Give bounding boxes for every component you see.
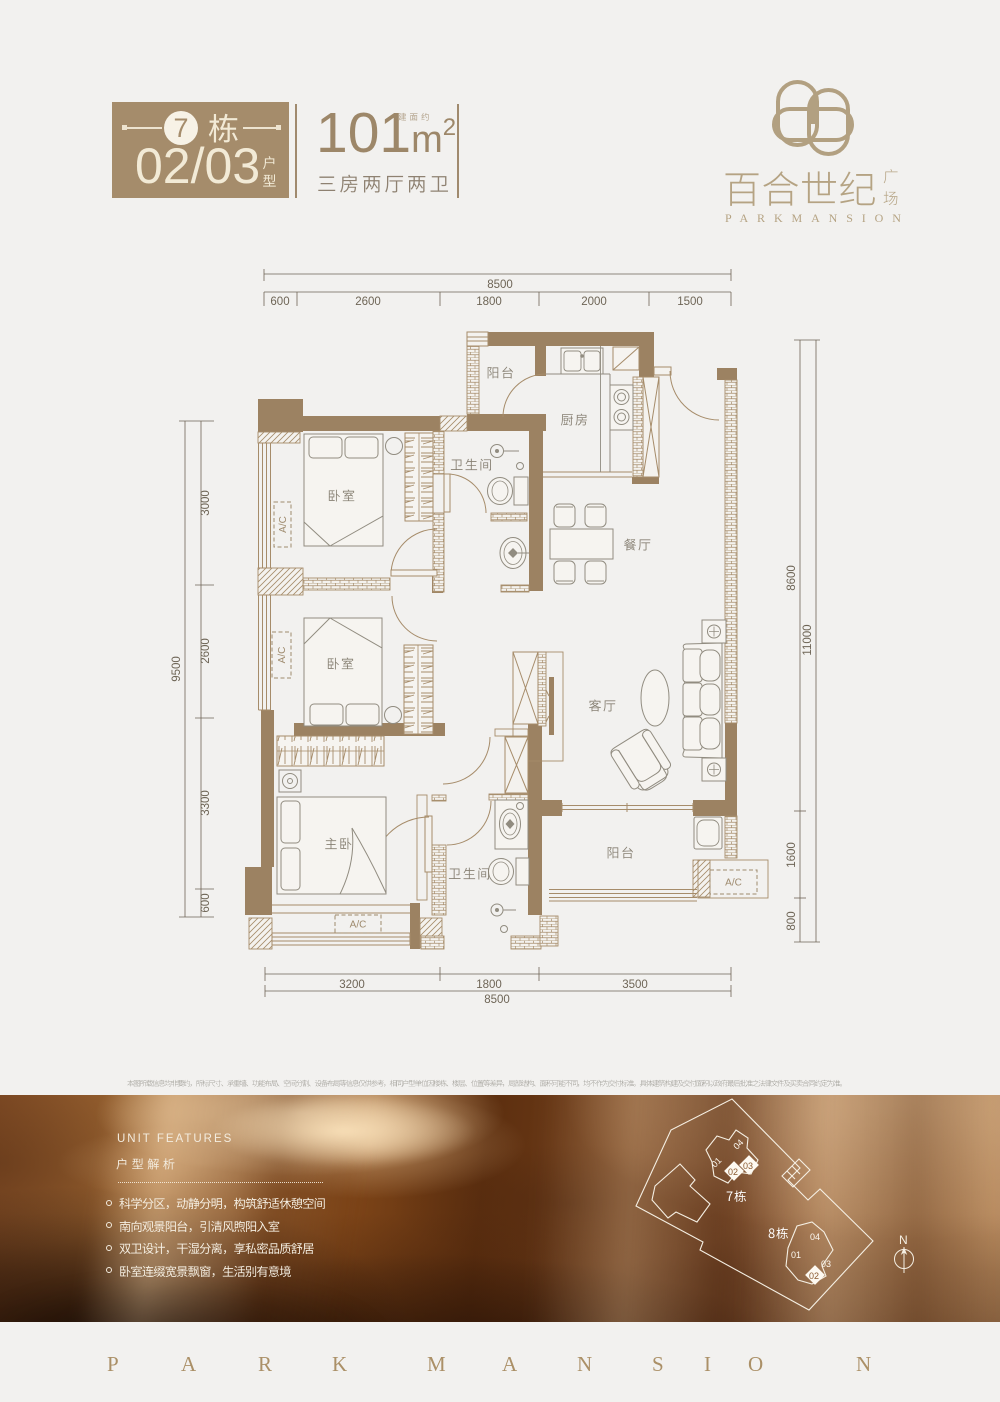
svg-text:02: 02 (809, 1271, 819, 1281)
svg-text:2600: 2600 (355, 296, 381, 308)
svg-text:A/C: A/C (725, 878, 742, 889)
svg-text:02: 02 (728, 1167, 738, 1177)
svg-text:A/C: A/C (350, 920, 367, 931)
svg-text:1800: 1800 (476, 979, 502, 991)
svg-text:04: 04 (731, 1137, 745, 1151)
svg-text:2000: 2000 (581, 296, 607, 308)
svg-text:03: 03 (743, 1161, 753, 1171)
svg-text:8500: 8500 (487, 279, 513, 291)
svg-text:03: 03 (821, 1259, 831, 1269)
svg-text:01: 01 (791, 1250, 801, 1260)
svg-text:3200: 3200 (339, 979, 365, 991)
svg-text:1600: 1600 (786, 842, 798, 868)
svg-text:11000: 11000 (802, 624, 814, 655)
svg-text:A/C: A/C (277, 647, 288, 664)
svg-text:A/C: A/C (278, 516, 289, 533)
svg-text:8500: 8500 (484, 994, 510, 1006)
svg-text:3300: 3300 (200, 790, 212, 816)
svg-text:2600: 2600 (200, 638, 212, 664)
svg-text:01: 01 (709, 1155, 723, 1169)
svg-text:3000: 3000 (200, 490, 212, 516)
svg-text:04: 04 (810, 1232, 820, 1242)
svg-text:N: N (899, 1233, 908, 1247)
svg-text:9500: 9500 (171, 656, 183, 682)
svg-text:3500: 3500 (622, 979, 648, 991)
svg-text:800: 800 (786, 911, 798, 930)
svg-text:1500: 1500 (677, 296, 703, 308)
svg-text:8600: 8600 (786, 565, 798, 591)
svg-text:1800: 1800 (476, 296, 502, 308)
svg-text:600: 600 (270, 296, 289, 308)
svg-text:600: 600 (200, 893, 212, 912)
